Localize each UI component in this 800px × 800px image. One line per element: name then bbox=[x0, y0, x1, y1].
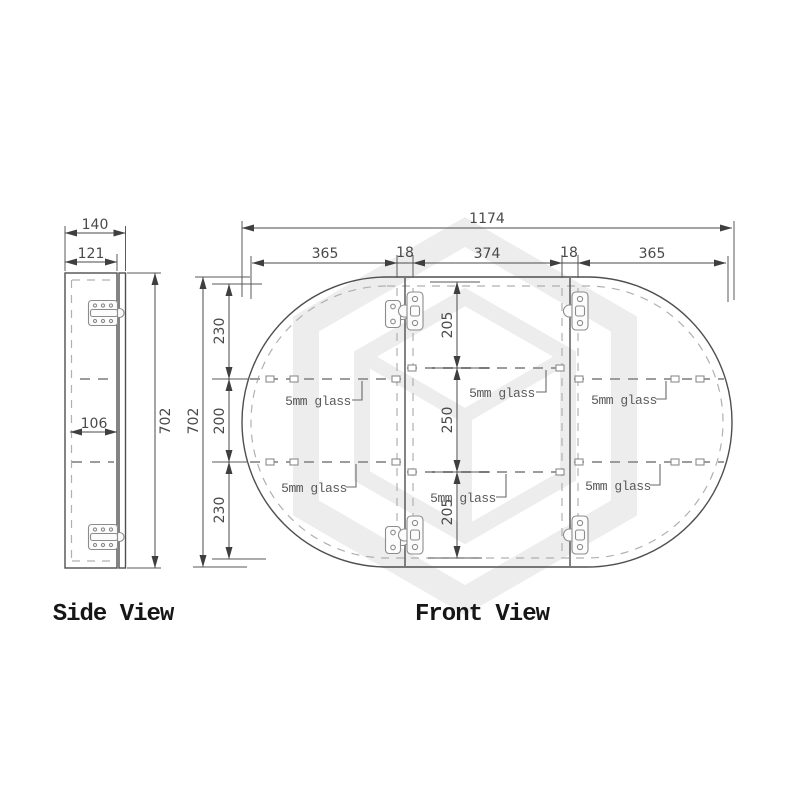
front-dim-side-top: 230 bbox=[212, 318, 228, 345]
front-dim-side-bottom: 230 bbox=[212, 497, 228, 524]
front-dim-left-door: 365 bbox=[312, 246, 339, 262]
side-dim-height: 702 bbox=[158, 408, 174, 435]
glass-label: 5mm glass bbox=[430, 491, 496, 506]
front-dim-left-gap: 18 bbox=[396, 245, 414, 261]
front-dim-total-width: 1174 bbox=[469, 211, 505, 227]
glass-label: 5mm glass bbox=[281, 481, 347, 496]
side-dim-total-depth: 140 bbox=[82, 217, 109, 233]
cabinet-hinge-icon bbox=[399, 516, 424, 554]
shelf-clips bbox=[266, 365, 704, 475]
side-dim-body-depth: 121 bbox=[78, 246, 105, 262]
glass-label: 5mm glass bbox=[591, 393, 657, 408]
front-dim-center-top: 205 bbox=[440, 312, 456, 339]
side-view: 140 121 106 702 Side View bbox=[53, 217, 175, 628]
front-dim-right-door: 365 bbox=[639, 246, 666, 262]
glass-label: 5mm glass bbox=[285, 394, 351, 409]
side-dimension-lines bbox=[65, 226, 161, 568]
glass-shelf-lines bbox=[250, 368, 724, 472]
technical-drawing-canvas: 140 121 106 702 Side View bbox=[0, 0, 800, 800]
glass-label: 5mm glass bbox=[469, 386, 535, 401]
front-dim-center-door: 374 bbox=[474, 246, 501, 262]
front-dim-right-gap: 18 bbox=[560, 245, 578, 261]
side-view-title: Side View bbox=[53, 601, 175, 628]
front-dim-side-middle: 200 bbox=[212, 408, 228, 435]
side-dim-inner-depth: 106 bbox=[81, 416, 108, 432]
glass-label: 5mm glass bbox=[585, 479, 651, 494]
front-dim-center-middle: 250 bbox=[440, 407, 456, 434]
front-view-title: Front View bbox=[415, 601, 551, 628]
front-dim-height: 702 bbox=[186, 408, 202, 435]
